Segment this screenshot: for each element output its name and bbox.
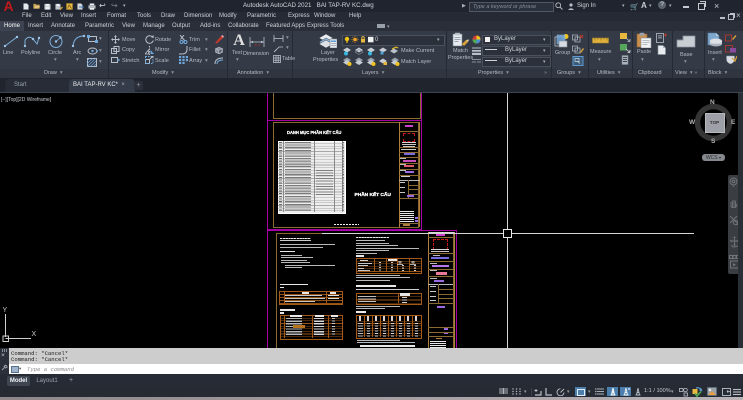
svg-text:X: X [32,331,37,338]
svg-text:Y: Y [3,307,8,314]
